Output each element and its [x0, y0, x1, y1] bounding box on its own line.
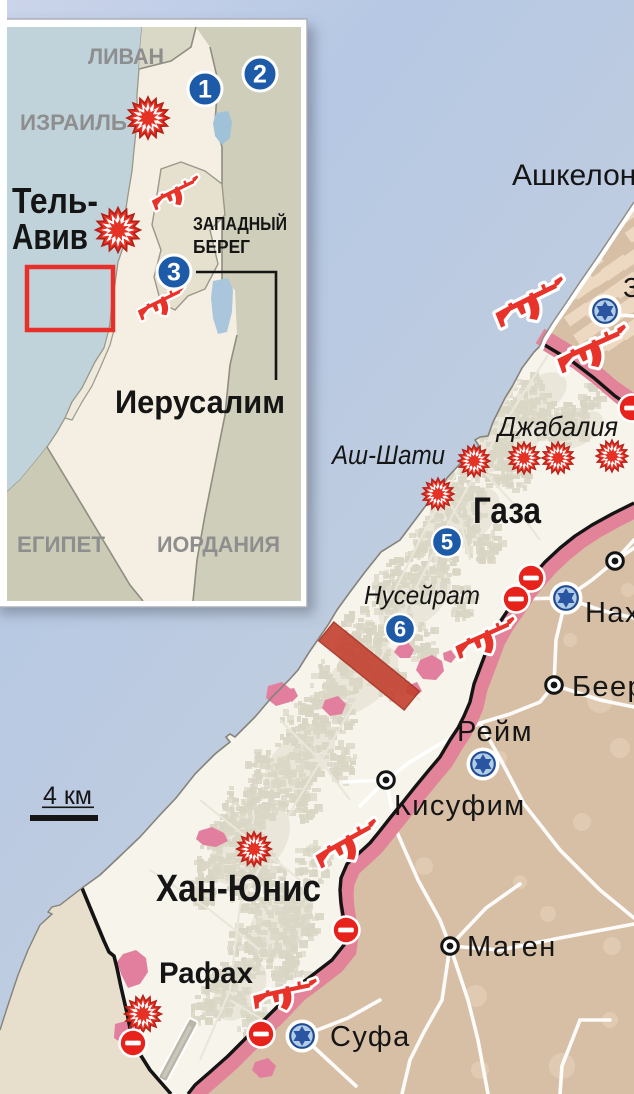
svg-text:ЗАПАДНЫЙ: ЗАПАДНЫЙ: [193, 213, 287, 234]
svg-text:Джабалия: Джабалия: [495, 411, 618, 442]
svg-text:Газа: Газа: [473, 490, 541, 531]
svg-text:Рейм: Рейм: [457, 716, 533, 748]
svg-text:ЛИВАН: ЛИВАН: [88, 44, 164, 69]
svg-text:Аш-Шати: Аш-Шати: [330, 440, 445, 470]
svg-text:ИОРДАНИЯ: ИОРДАНИЯ: [157, 532, 280, 557]
svg-text:6: 6: [394, 617, 406, 642]
svg-text:БЕРЕГ: БЕРЕГ: [193, 237, 250, 257]
svg-text:Кисуфим: Кисуфим: [394, 790, 526, 822]
svg-text:Нусейрат: Нусейрат: [364, 580, 480, 610]
svg-text:Тель-: Тель-: [12, 180, 98, 221]
svg-text:Маген: Маген: [467, 931, 557, 963]
svg-text:Нахаль-Оз: Нахаль-Оз: [585, 597, 634, 629]
svg-text:Ашкелон: Ашкелон: [512, 159, 634, 192]
svg-text:Зиким: Зиким: [623, 272, 634, 303]
svg-text:2: 2: [253, 61, 267, 89]
svg-text:5: 5: [441, 530, 453, 555]
svg-text:ЕГИПЕТ: ЕГИПЕТ: [17, 532, 106, 557]
svg-text:Иерусалим: Иерусалим: [115, 384, 285, 420]
svg-text:Хан-Юнис: Хан-Юнис: [156, 868, 321, 910]
svg-text:1: 1: [198, 76, 212, 104]
svg-text:ИЗРАИЛЬ: ИЗРАИЛЬ: [20, 110, 127, 135]
svg-text:4 км: 4 км: [43, 782, 92, 810]
svg-text:Авив: Авив: [12, 216, 88, 257]
svg-text:Беери: Беери: [572, 671, 634, 703]
svg-text:3: 3: [167, 259, 181, 287]
svg-text:Рафах: Рафах: [159, 957, 253, 990]
svg-text:Суфа: Суфа: [330, 1021, 411, 1053]
